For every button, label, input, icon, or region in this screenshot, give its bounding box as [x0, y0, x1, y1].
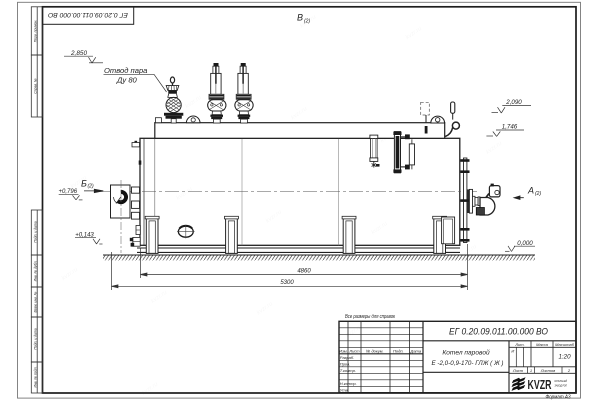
- svg-text:1:20: 1:20: [558, 354, 571, 361]
- svg-text:Масса: Масса: [536, 342, 549, 347]
- svg-text:Лит.: Лит.: [514, 342, 524, 347]
- svg-text:Инв. № дубл.: Инв. № дубл.: [33, 261, 37, 282]
- svg-text:В: В: [297, 13, 303, 23]
- svg-text:Взам. инв. №: Взам. инв. №: [33, 291, 37, 312]
- svg-text:1,746: 1,746: [502, 124, 518, 131]
- svg-text:Все размеры для справок: Все размеры для справок: [345, 314, 395, 320]
- svg-text:(2): (2): [88, 184, 94, 190]
- svg-text:И: И: [511, 349, 514, 354]
- svg-text:ЗАВОД РЭП: ЗАВОД РЭП: [555, 384, 568, 388]
- svg-text:Б: Б: [81, 179, 87, 189]
- svg-text:Е -2,0-0,9-170- ГЛЖ ( Ж ): Е -2,0-0,9-170- ГЛЖ ( Ж ): [432, 360, 504, 367]
- svg-text:(2): (2): [535, 191, 541, 197]
- svg-text:Изм.: Изм.: [339, 348, 348, 353]
- svg-text:KVZR: KVZR: [528, 378, 552, 392]
- svg-text:Ду 80: Ду 80: [116, 76, 138, 85]
- svg-text:5300: 5300: [280, 280, 294, 286]
- svg-text:Перв. примен.: Перв. примен.: [33, 20, 37, 43]
- svg-text:Утв.: Утв.: [340, 387, 349, 392]
- svg-text:Подп. и дата: Подп. и дата: [33, 328, 37, 349]
- svg-text:Котел паровой: Котел паровой: [442, 348, 490, 356]
- svg-text:Подп. и дата: Подп. и дата: [33, 221, 37, 242]
- svg-text:Пров.: Пров.: [340, 361, 351, 366]
- svg-text:Разраб.: Разраб.: [340, 355, 354, 360]
- svg-text:+0,796: +0,796: [59, 189, 78, 195]
- svg-text:Инв. № подл.: Инв. № подл.: [33, 366, 37, 387]
- svg-text:Т.контр.: Т.контр.: [340, 368, 356, 373]
- svg-text:Листов: Листов: [540, 368, 556, 373]
- svg-text:2,090: 2,090: [505, 99, 522, 106]
- svg-text:(2): (2): [304, 19, 310, 25]
- svg-text:Дата: Дата: [410, 348, 422, 353]
- svg-text:+0,143: +0,143: [75, 232, 94, 238]
- svg-text:0,000: 0,000: [517, 240, 533, 247]
- svg-text:Масштаб: Масштаб: [555, 342, 574, 347]
- svg-text:2,850: 2,850: [70, 50, 87, 57]
- svg-text:ЕГ 0.20.09.011.00.000 ВО: ЕГ 0.20.09.011.00.000 ВО: [449, 326, 548, 336]
- svg-text:ЕГ 0.20.09.011.00.000 ВО: ЕГ 0.20.09.011.00.000 ВО: [47, 11, 127, 18]
- svg-text:А: А: [527, 185, 534, 195]
- svg-text:КОТЕЛЬНЫЙ: КОТЕЛЬНЫЙ: [555, 379, 568, 383]
- svg-text:4860: 4860: [297, 268, 311, 274]
- svg-text:Формат А3: Формат А3: [546, 394, 571, 400]
- svg-text:Отвод пара: Отвод пара: [104, 66, 147, 75]
- svg-text:№ докум.: № докум.: [366, 348, 384, 353]
- svg-text:Н.контр.: Н.контр.: [340, 381, 357, 386]
- svg-text:Лист: Лист: [348, 348, 360, 353]
- svg-text:Подп.: Подп.: [393, 348, 404, 353]
- svg-text:1: 1: [530, 368, 532, 373]
- svg-text:Лист: Лист: [512, 368, 524, 373]
- svg-text:Справ. №: Справ. №: [33, 78, 37, 94]
